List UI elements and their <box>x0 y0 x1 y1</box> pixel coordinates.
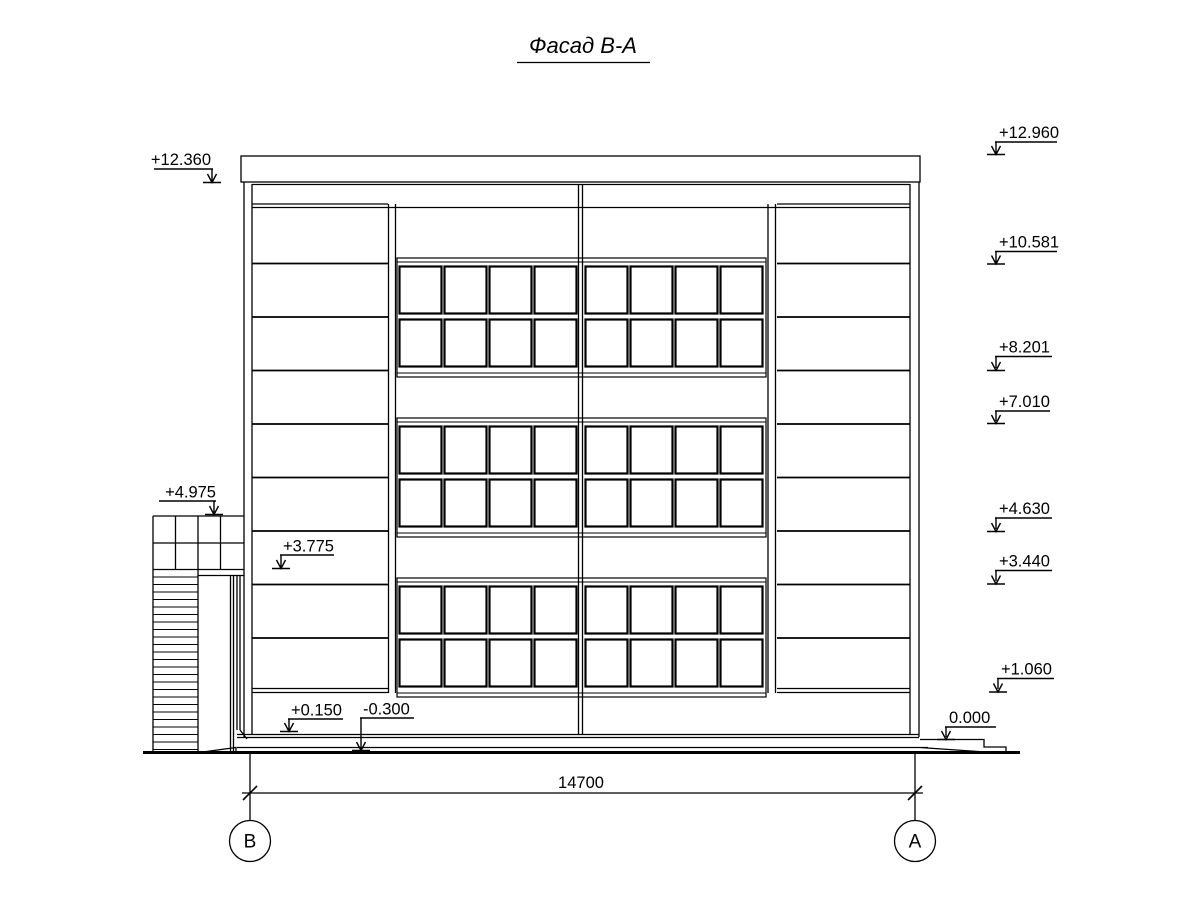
window-pane <box>400 267 442 314</box>
window-pane <box>535 587 577 634</box>
elevation-mark-left-minus0300: -0.300 <box>352 701 414 751</box>
window-pane <box>535 427 577 474</box>
axis-letter-b: В <box>244 832 257 853</box>
window-pane <box>445 267 487 314</box>
window-pane <box>400 320 442 367</box>
elevation-label: +4.630 <box>999 500 1050 518</box>
window-pane <box>490 480 532 527</box>
window-pane <box>676 267 718 314</box>
window-pane <box>490 267 532 314</box>
title-text: Фасад В-А <box>529 33 637 58</box>
elevation-label: +4.975 <box>165 484 216 502</box>
window-pane <box>490 587 532 634</box>
window-band-inner-line <box>397 262 766 373</box>
elevation-mark-right-1060: +1.060 <box>989 661 1054 693</box>
window-pane <box>631 640 673 687</box>
elevation-label: +3.775 <box>283 538 334 556</box>
window-pane <box>535 320 577 367</box>
window-pane <box>676 320 718 367</box>
window-pane <box>445 320 487 367</box>
elevation-label: 0.000 <box>949 709 990 727</box>
stair-rungs <box>153 577 198 750</box>
facade-drawing-sheet: Фасад В-А +12.360 +4.975 +3.775 +0.150 -… <box>0 0 1200 900</box>
elevation-label: -0.300 <box>363 701 410 719</box>
window-pane <box>676 587 718 634</box>
window-pane <box>445 640 487 687</box>
dimension-line: 14700 <box>243 774 922 800</box>
window-band-frame <box>397 418 766 537</box>
window-pane <box>676 427 718 474</box>
window-pane <box>445 427 487 474</box>
window-pane <box>586 480 628 527</box>
stair-tower-steps <box>153 577 198 750</box>
window-pane <box>631 267 673 314</box>
elevation-label: +7.010 <box>999 393 1050 411</box>
elevation-mark-right-10581: +10.581 <box>987 234 1059 265</box>
window-pane <box>721 640 763 687</box>
window-pane <box>400 427 442 474</box>
elevation-mark-right-0000: 0.000 <box>937 709 996 740</box>
dimension-text: 14700 <box>558 774 604 792</box>
axis-circle-a: А <box>895 821 936 862</box>
window-pane <box>586 320 628 367</box>
elevation-label: +1.060 <box>1001 661 1052 679</box>
window-pane <box>721 267 763 314</box>
window-pane <box>721 427 763 474</box>
elevation-mark-right-3440: +3.440 <box>987 553 1052 585</box>
window-pane <box>631 587 673 634</box>
axis-circle-b: В <box>230 821 271 862</box>
elevation-mark-right-12960: +12.960 <box>987 124 1059 155</box>
window-pane <box>535 267 577 314</box>
elevation-label: +8.201 <box>999 339 1050 357</box>
window-band-frame <box>397 258 766 377</box>
facade-elevation-drawing: Фасад В-А +12.360 +4.975 +3.775 +0.150 -… <box>0 0 1200 900</box>
window-pane <box>721 480 763 527</box>
elevation-mark-left-4975: +4.975 <box>159 484 223 515</box>
window-grid <box>397 258 766 697</box>
window-pane <box>400 480 442 527</box>
window-pane <box>586 587 628 634</box>
elevation-mark-right-7010: +7.010 <box>987 393 1050 424</box>
window-pane <box>586 427 628 474</box>
window-pane <box>490 320 532 367</box>
window-pane <box>631 427 673 474</box>
window-pane <box>721 587 763 634</box>
window-pane <box>400 640 442 687</box>
drawing-title: Фасад В-А <box>517 33 650 63</box>
elevation-mark-left-12360: +12.360 <box>151 151 221 183</box>
window-band-frame <box>397 578 766 697</box>
window-pane <box>676 640 718 687</box>
elevation-label: +12.960 <box>999 124 1059 142</box>
window-pane <box>445 480 487 527</box>
elevation-label: +3.440 <box>999 553 1050 571</box>
elevation-label: +12.360 <box>151 151 211 169</box>
elevation-mark-right-8201: +8.201 <box>987 339 1052 371</box>
window-pane <box>535 640 577 687</box>
window-pane <box>400 587 442 634</box>
elevation-mark-left-3775: +3.775 <box>272 538 334 569</box>
elevation-label: +10.581 <box>999 234 1059 252</box>
building-outline <box>143 156 1020 821</box>
elevation-label: +0.150 <box>291 702 342 720</box>
window-pane <box>490 427 532 474</box>
window-pane <box>445 587 487 634</box>
axis-letter-a: А <box>909 832 922 853</box>
elevation-mark-right-4630: +4.630 <box>987 500 1052 532</box>
window-band-inner-line <box>397 582 766 693</box>
window-pane <box>676 480 718 527</box>
parapet <box>241 156 920 182</box>
window-pane <box>631 480 673 527</box>
walls-and-frame <box>153 182 1006 821</box>
window-pane <box>631 320 673 367</box>
window-pane <box>490 640 532 687</box>
elevation-mark-left-0150: +0.150 <box>280 702 343 732</box>
window-pane <box>586 640 628 687</box>
window-pane <box>586 267 628 314</box>
window-pane <box>721 320 763 367</box>
window-band-inner-line <box>397 422 766 533</box>
window-pane <box>535 480 577 527</box>
